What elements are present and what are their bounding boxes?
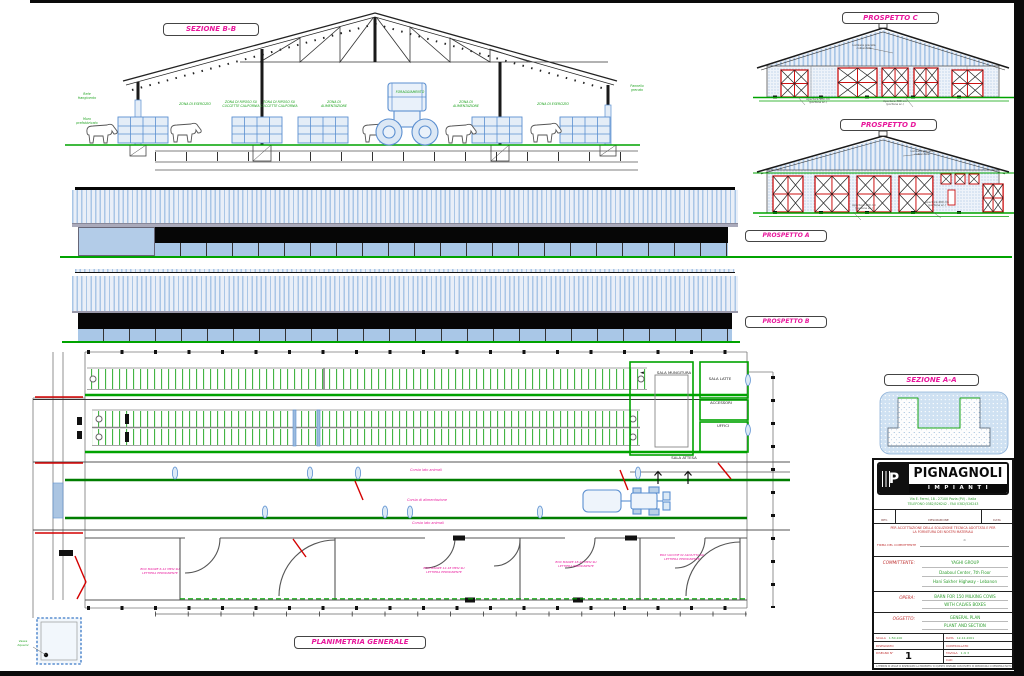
arrow-left-icon: ◄ [640, 370, 644, 376]
section-note: ZONA DI ESERCIZIO [530, 102, 576, 106]
tavola-label: TAVOLA [946, 651, 958, 655]
planimetria-label: PLANIMETRIA GENERALE [294, 636, 426, 649]
scala-label: SCALA [876, 636, 886, 640]
opera-value: WITH CALVES BOXES [922, 603, 1008, 609]
cubicle-row-top [87, 368, 647, 390]
sheet-edge-bottom [0, 671, 1024, 676]
section-note: FORAGGIAMENTO [390, 90, 430, 94]
legal-footer: A TERMINI DI LEGGE CI RISERVIAMO LA PROP… [874, 664, 1012, 670]
oggetto-value: GENERAL PLAN [922, 616, 1008, 622]
prospetto-a-wall-left [78, 227, 155, 256]
section-truss [240, 18, 608, 62]
prospetto-d-drawing [753, 116, 1015, 228]
section-bb-drawing [60, 5, 645, 173]
drawing-number-row: DISEGNO N° 1 TAVOLA 1 di 3 CAD [874, 650, 1012, 664]
section-note: ZONA DI RIPOSO SU CUCCETTE CALIFORNIA [260, 100, 298, 108]
section-note: ZONA DI ALIMENTAZIONE [316, 100, 352, 108]
committente-value: Daaboul Center, 7th Floor [922, 571, 1008, 577]
tank-note: Vasca liquami [10, 640, 36, 648]
oggetto-section: OGGETTO: GENERAL PLAN PLANT AND SECTION [874, 613, 1012, 634]
committente-label: COMMITTENTE: [874, 557, 918, 591]
room-label-sala-mungitura: SALA MUNGITURA [648, 371, 700, 375]
pen-label: BOX VACCHE IN ASCIUTTA SU LETTIERA PERMA… [646, 554, 718, 562]
committente-section: COMMITTENTE: YAGHI GROUP Daaboul Center,… [874, 557, 1012, 592]
data-value: 12-12-2001 [957, 636, 974, 640]
brand-subtitle: IMPIANTI [909, 484, 1007, 493]
prospetto-a-ground [60, 256, 1012, 258]
room-label-accessori: ACCESSORI [701, 401, 741, 405]
room-label-sala-attesa: SALA ATTESA [660, 456, 708, 460]
left-annex-cell [53, 483, 63, 518]
prospetto-b-roof [72, 276, 738, 311]
pen-label: BOX MANZE 12-18 MESI SU LETTIERA PERMANE… [408, 567, 480, 575]
pen-label: BOX MANZE 6-12 MESI SU LETTIERA PERMANEN… [124, 568, 196, 576]
controllato-label: CONTROLLATO [946, 644, 968, 648]
prospetto-a-label: PROSPETTO A [745, 230, 827, 242]
pen-label: BOX MANZE 18-24 MESI SU LETTIERA PERMANE… [536, 561, 616, 569]
floor-plan-drawing [25, 342, 795, 672]
left-annex-block [59, 550, 73, 556]
gate-leaves [172, 467, 640, 518]
prospetto-a-wall-panels [155, 243, 728, 256]
prospetto-a-opening [155, 227, 728, 243]
elevation-note: Apertura 400 cm (portone sc.) [797, 98, 839, 105]
elevation-note: Apertura 400 cm (portone sc.) [843, 204, 885, 211]
ridge-vent [879, 131, 887, 136]
foundation-strip [155, 151, 638, 170]
disegnato-row: DISEGNATO CONTROLLATO [874, 642, 1012, 650]
address-line: TELEFONO 0382/526242 - FAX 0382/526243 [874, 502, 1012, 507]
elevation-note: Lamiera grecata coibentata [842, 44, 886, 51]
lane-label: Corsia lato animali [398, 521, 458, 525]
brand-name: PIGNAGNOLI [911, 464, 1004, 484]
disegno-label: DISEGNO N° [876, 651, 893, 655]
section-bb-label: SEZIONE B-B [163, 23, 259, 36]
pignagnoli-logo: P PIGNAGNOLI IMPIANTI [877, 462, 1009, 495]
data-label: DATA [946, 636, 954, 640]
committente-value: Hani Sakher Highway - Lebanon [922, 580, 1008, 586]
prospetto-b-wall-panels [78, 329, 732, 341]
plan-tractor [583, 487, 670, 515]
scala-value: 1:50,100 [889, 636, 902, 640]
prospetto-a-roof [72, 190, 738, 224]
cad-label: CAD [946, 658, 952, 662]
signature-line: di [920, 538, 1009, 547]
prospetto-b-label: PROSPETTO B [745, 316, 827, 328]
rev-col: DATA [982, 510, 1012, 523]
opera-value: BARN FOR 150 MILKING COWS [922, 595, 1008, 601]
company-address: Via E. Fermi, 18 - 27100 Pavia (PV) - It… [874, 497, 1012, 509]
section-note: Rete frangivento [70, 92, 104, 100]
section-aa-label: SEZIONE A-A [884, 374, 979, 386]
section-note: ZONA DI RIPOSO SU CUCCETTE CALIFORNIA [222, 100, 260, 108]
signature-label: FIRMA DEL COMMITTENTE [877, 543, 916, 547]
rev-col: REV. [874, 510, 896, 523]
prospetto-b-opening [78, 313, 732, 329]
section-note: Pannello grecato [622, 84, 652, 92]
sheet-edge-top [30, 0, 1015, 3]
revision-table: REV. DESCRIZIONE DATA [874, 509, 1012, 524]
room-label-sala-latte: SALA LATTE [700, 377, 740, 381]
room-label-uffici: UFFICI [705, 424, 741, 428]
acceptance-note: PER ACCETTAZIONE DELLA SOLUZIONE TECNICA… [874, 524, 1012, 557]
section-note: ZONA DI ESERCIZIO [172, 102, 218, 106]
section-note: Muro prefabbricato [70, 117, 104, 125]
committente-value: YAGHI GROUP [922, 561, 1008, 567]
rev-col: DESCRIZIONE [896, 510, 982, 523]
sheet-edge-right [1014, 0, 1024, 676]
oggetto-label: OGGETTO: [874, 613, 918, 633]
tavola-value: 1 di 3 [961, 651, 969, 655]
title-block: P PIGNAGNOLI IMPIANTI Via E. Fermi, 18 -… [872, 458, 1014, 670]
elevation-note: Apertura 400 cm (portone sc.) [916, 201, 958, 208]
oggetto-value: PLANT AND SECTION [922, 624, 1008, 630]
logo-p-icon: P [879, 464, 909, 493]
prospetto-b-ridge [75, 269, 735, 273]
lane-label: Corsia di alimentazione [392, 498, 462, 502]
prospetto-c-label: PROSPETTO C [842, 12, 939, 24]
gable-roof [767, 138, 999, 170]
opera-label: OPERA: [874, 592, 918, 612]
slurry-tank [33, 618, 81, 664]
elevation-note: Apertura 400 cm (portone sc.) [874, 100, 916, 107]
disclaimer-line: LA FORNITURA DEI NOSTRI MATERIALI [874, 530, 1012, 534]
plan-structure [33, 352, 773, 618]
opera-section: OPERA: BARN FOR 150 MILKING COWS WITH CA… [874, 592, 1012, 613]
cubicle-row-mid [77, 410, 640, 446]
lane-label: Corsia lato animali [396, 468, 456, 472]
section-note: ZONA DI ALIMENTAZIONE [448, 100, 484, 108]
elevation-note: Lamiera grecata coibentata [900, 150, 944, 157]
drawing-sheet: SEZIONE B-B Rete frangivento Muro prefab… [0, 0, 1024, 676]
disegnato-label: DISEGNATO [876, 644, 894, 648]
scala-data-row: SCALA 1:50,100 DATA 12-12-2001 [874, 634, 1012, 642]
signature-separator: di [963, 538, 966, 542]
prospetto-d-label: PROSPETTO D [840, 119, 937, 131]
